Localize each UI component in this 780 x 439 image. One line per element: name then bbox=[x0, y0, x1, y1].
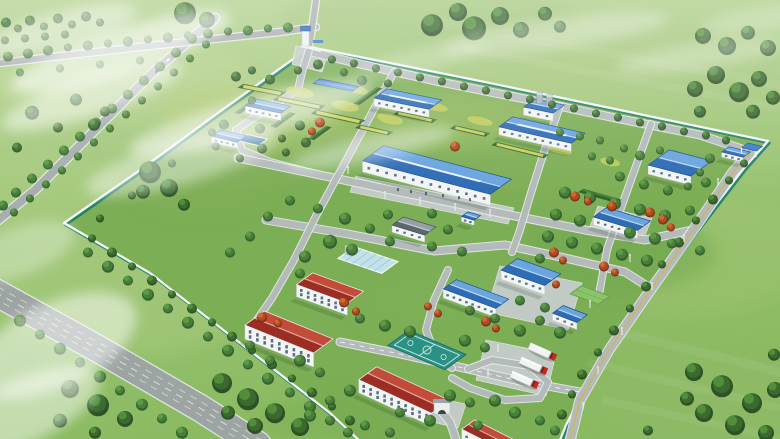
atmospheric-haze bbox=[0, 0, 780, 439]
aerial-site-rendering bbox=[0, 0, 780, 439]
industrial-campus-aerial-view bbox=[0, 0, 780, 439]
